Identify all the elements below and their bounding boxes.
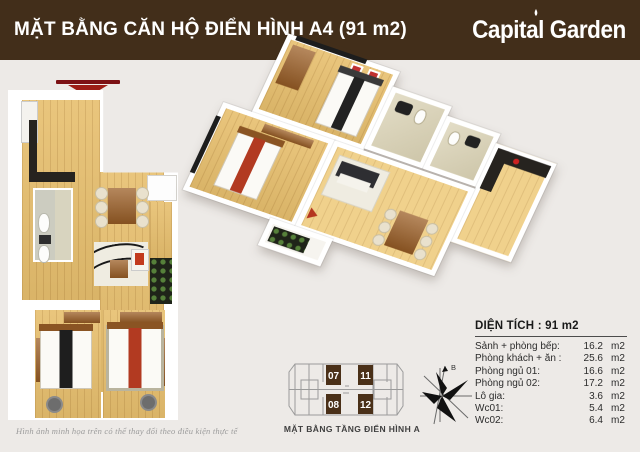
- unit-label-08: 08: [328, 400, 340, 411]
- table-row: Wc02: 6.4 m2: [475, 416, 627, 427]
- key-plan-drawing: 07 11 08 12: [283, 360, 409, 420]
- table-row: Sảnh + phòng bếp: 16.2 m2: [475, 342, 627, 353]
- dining-table: [108, 188, 136, 224]
- entry-marker-3d: [306, 207, 320, 221]
- wardrobe-3d: [275, 45, 316, 91]
- sink-3d: [464, 135, 482, 150]
- unit-label-11: 11: [360, 371, 371, 382]
- chair: [96, 202, 107, 213]
- building-key-plan: 07 11 08 12: [283, 360, 409, 425]
- bed-2: [109, 328, 161, 388]
- divider: [475, 336, 627, 337]
- bath-mat: [39, 235, 51, 244]
- kitchen-counter-2: [29, 172, 75, 182]
- compass-icon: B: [420, 358, 474, 435]
- area-table: DIỆN TÍCH : 91 m2 Sảnh + phòng bếp: 16.2…: [475, 320, 627, 429]
- table-row: Phòng khách + ăn : 25.6 m2: [475, 354, 627, 365]
- bathtub: [39, 246, 49, 262]
- page-title: MẶT BẰNG CĂN HỘ ĐIỂN HÌNH A4 (91 m2): [14, 19, 407, 41]
- loggia-strip: [150, 202, 172, 258]
- sink-3d: [394, 100, 414, 116]
- coffee-table: [110, 260, 128, 278]
- wc-tile: [55, 190, 71, 260]
- table-row: Phòng ngủ 01: 16.6 m2: [475, 367, 627, 378]
- area-table-title: DIỆN TÍCH : 91 m2: [475, 320, 627, 332]
- kitchen-counter: [29, 120, 37, 176]
- chair: [96, 216, 107, 227]
- toilet-3d: [447, 131, 461, 146]
- chair: [96, 188, 107, 199]
- disclaimer-text: Hình ảnh minh họa trên có thể thay đổi t…: [16, 426, 238, 436]
- bed-runner-black: [60, 330, 73, 388]
- bed3d-1: [316, 71, 380, 136]
- leaf-icon: [532, 9, 541, 19]
- table-row: Phòng ngủ 02: 17.2 m2: [475, 379, 627, 390]
- brand-text: Capital Garden: [472, 16, 626, 44]
- bed-runner-red: [129, 328, 142, 388]
- bed-1: [41, 330, 91, 388]
- chair: [137, 188, 148, 199]
- brand-logo: Capital Garden: [472, 16, 626, 45]
- unit-label-07: 07: [328, 371, 340, 382]
- stool: [142, 396, 155, 409]
- chair: [137, 216, 148, 227]
- plant-box: [150, 258, 172, 304]
- toilet-3d: [413, 109, 427, 125]
- stool: [48, 398, 61, 411]
- table-row: Wc01: 5.4 m2: [475, 404, 627, 415]
- toilet: [39, 214, 49, 232]
- floorplan-3d: [170, 24, 572, 325]
- poster-canvas: MẶT BẰNG CĂN HỘ ĐIỂN HÌNH A4 (91 m2) Cap…: [0, 0, 640, 452]
- key-plan-caption: MẶT BẰNG TẦNG ĐIỂN HÌNH A: [272, 424, 432, 434]
- floorplan-2d: [8, 90, 178, 420]
- balcony: [148, 176, 176, 200]
- unit-label-12: 12: [360, 400, 372, 411]
- plants-3d: [267, 226, 310, 253]
- chair: [137, 202, 148, 213]
- bed3d-2: [215, 132, 281, 199]
- table-row: Lô gia: 3.6 m2: [475, 392, 627, 403]
- wardrobe: [64, 312, 100, 323]
- red-cushion: [135, 253, 144, 265]
- compass-north-label: B: [451, 363, 456, 372]
- room-wc: [33, 188, 73, 262]
